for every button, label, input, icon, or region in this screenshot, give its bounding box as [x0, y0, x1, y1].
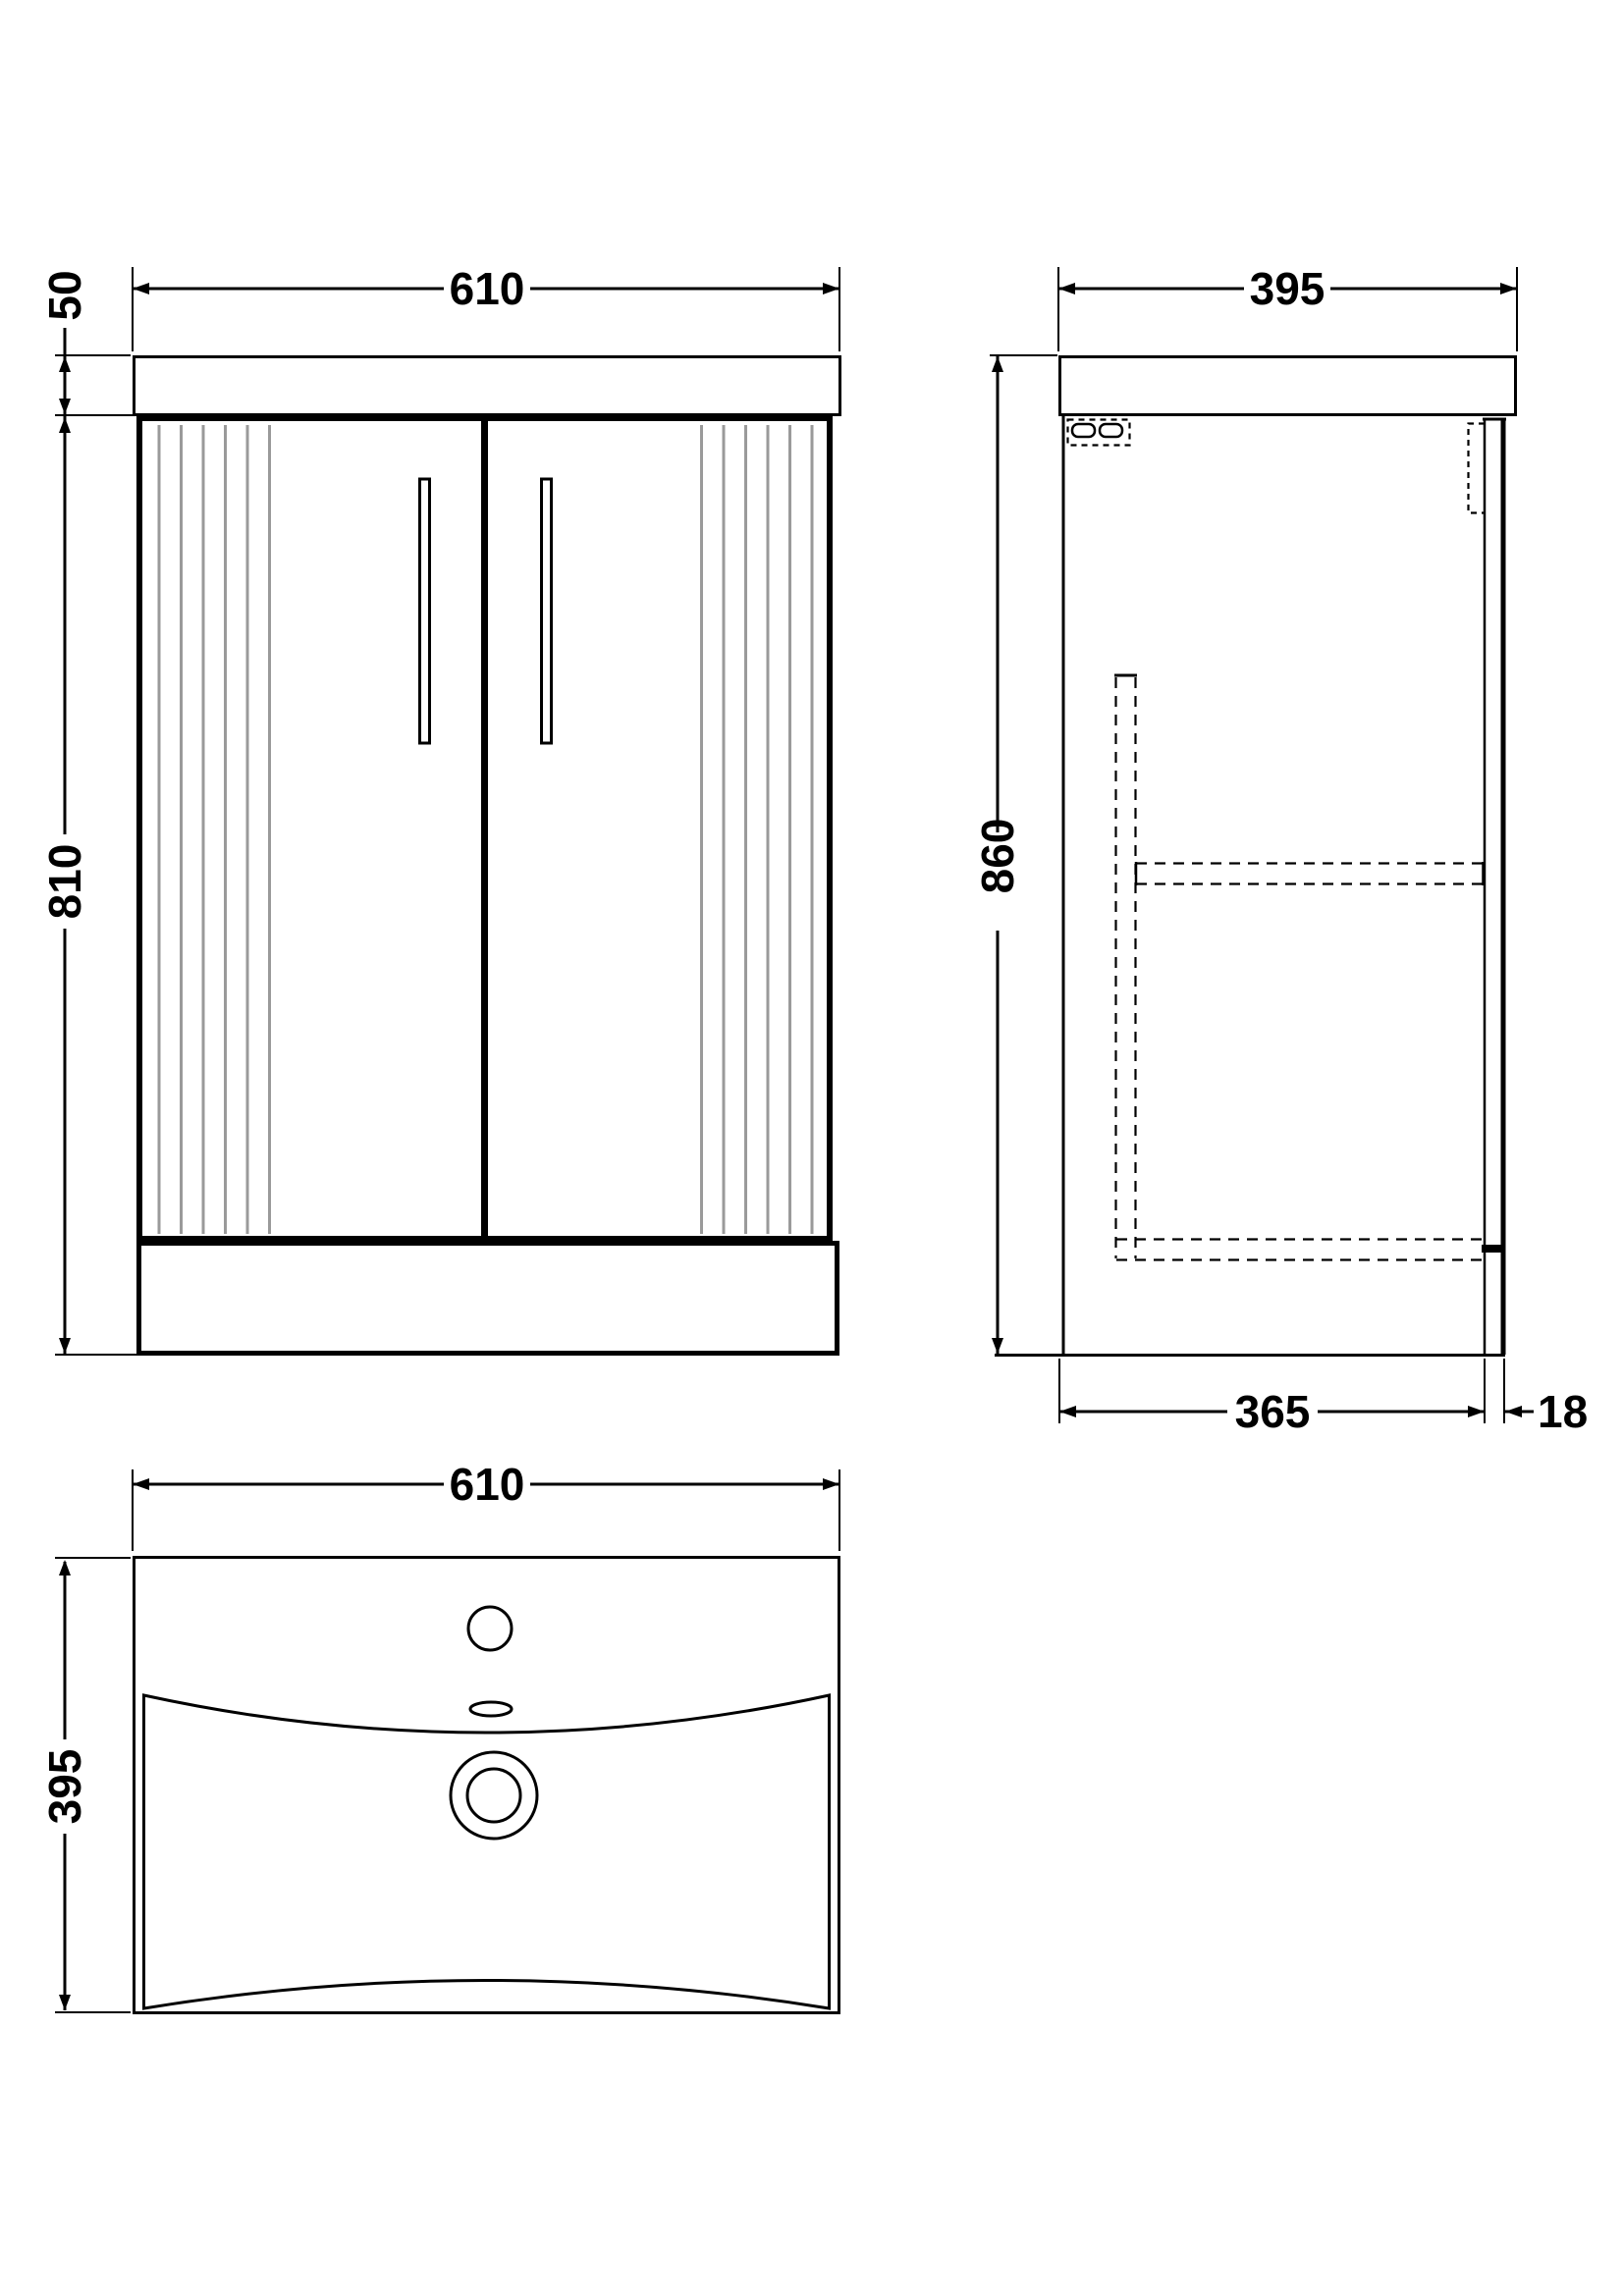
arrowhead-icon	[59, 1338, 71, 1354]
bottom-panel-hidden	[1116, 1240, 1504, 1260]
arrowhead-icon	[992, 356, 1003, 372]
technical-drawing-canvas: 610 50 810	[0, 0, 1623, 2296]
arrowhead-icon	[823, 1478, 839, 1490]
arrowhead-icon	[133, 283, 149, 294]
worktop-front	[135, 357, 840, 415]
hinge-body	[1100, 424, 1122, 437]
drain-inner-ring	[467, 1769, 520, 1822]
hinge-detail	[1068, 420, 1130, 446]
dimension-label: 860	[972, 819, 1023, 894]
hinge-body	[1072, 424, 1095, 437]
shelf-hidden	[1136, 862, 1484, 885]
dimension-label: 18	[1538, 1386, 1588, 1437]
dimension-label: 610	[450, 263, 525, 314]
cabinet-front	[139, 418, 830, 1239]
side-height-dimension: 860	[972, 355, 1057, 1355]
bracket-detail-hidden	[1469, 424, 1486, 513]
carcass-hidden-edge	[1114, 675, 1137, 1258]
dimension-label: 395	[39, 1749, 90, 1825]
basin-plan-view: 610 395	[39, 1459, 839, 2013]
arrowhead-icon	[1500, 283, 1517, 294]
dimension-label: 365	[1235, 1386, 1311, 1437]
dimension-label: 395	[1250, 263, 1325, 314]
arrowhead-icon	[1058, 283, 1075, 294]
front-width-dimension: 610	[133, 263, 839, 351]
vanity-technical-drawing: 610 50 810	[0, 0, 1623, 2296]
worktop-side	[1060, 357, 1516, 415]
carcass-depth-dimension: 365	[1059, 1359, 1504, 1437]
plan-width-dimension: 610	[133, 1459, 839, 1551]
arrowhead-icon	[59, 1560, 71, 1575]
arrowhead-icon	[133, 1478, 149, 1490]
back-panel-dimension: 18	[1504, 1386, 1588, 1437]
tap-hole	[468, 1607, 512, 1650]
drain-waste	[451, 1752, 537, 1839]
arrowhead-icon	[59, 1995, 71, 2010]
cabinet-height-dimension: 810	[39, 328, 136, 1355]
worktop-height-dimension: 50	[39, 270, 134, 415]
dimension-label: 610	[450, 1459, 525, 1510]
overflow-hole	[470, 1702, 512, 1716]
arrowhead-icon	[1468, 1406, 1485, 1417]
arrowhead-icon	[1059, 1406, 1076, 1417]
dimension-label: 810	[39, 844, 90, 920]
plinth-front	[139, 1244, 838, 1354]
side-view: 395 860	[972, 263, 1588, 1437]
front-view: 610 50 810	[39, 263, 840, 1355]
plan-depth-dimension: 395	[39, 1558, 131, 2012]
left-door-handle	[420, 479, 430, 743]
side-depth-dimension: 395	[1058, 263, 1517, 351]
right-door-handle	[542, 479, 552, 743]
arrowhead-icon	[992, 1338, 1003, 1354]
dimension-label: 50	[39, 270, 90, 320]
arrowhead-icon	[823, 283, 839, 294]
basin-bowl	[144, 1695, 830, 2008]
arrowhead-icon	[59, 417, 71, 433]
cabinet-side	[995, 415, 1506, 1356]
arrowhead-icon	[1505, 1406, 1522, 1417]
